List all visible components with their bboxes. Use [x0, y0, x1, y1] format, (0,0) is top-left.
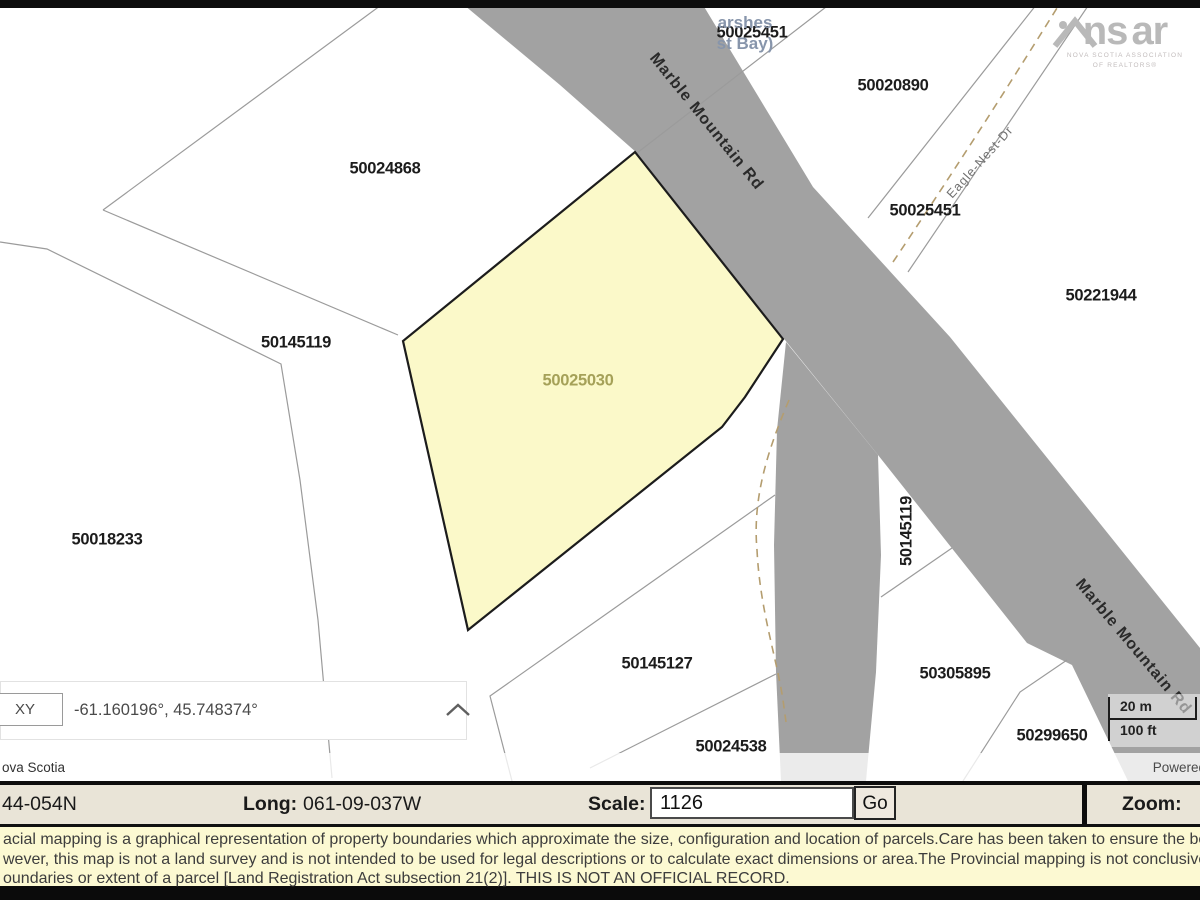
scale-bar-right-tick [1195, 697, 1197, 720]
parcel-label-50025451: 50025451 [889, 202, 960, 221]
attribution-strip: ova Scotia Powered [0, 753, 1200, 781]
nsar-logo-ar: ar [1131, 12, 1167, 50]
nsar-logo-subtitle2: OF REALTORS® [1052, 62, 1198, 70]
parcel-label-50025030: 50025030 [542, 372, 613, 391]
scale-input[interactable] [650, 787, 854, 819]
parcel-label-50020890: 50020890 [857, 77, 928, 96]
status-bar: 44-054N Long: 061-09-037W Scale: Go Zoom… [0, 781, 1200, 827]
scale-bar: 20 m 100 ft [1108, 694, 1200, 747]
place-name-line1: arshes [640, 12, 850, 33]
disclaimer-line2: wever, this map is not a land survey and… [3, 850, 1200, 870]
go-button[interactable]: Go [854, 786, 896, 820]
parcel-label-50299650: 50299650 [1016, 727, 1087, 746]
parcel-label-50145127: 50145127 [621, 655, 692, 674]
coordinate-mode-selector[interactable]: XY [0, 693, 63, 726]
scale-label: Scale: [588, 793, 645, 816]
nsar-logo-subtitle1: NOVA SCOTIA ASSOCIATION [1052, 52, 1198, 60]
parcel-label-50305895: 50305895 [919, 665, 990, 684]
zoom-label: Zoom: [1122, 793, 1182, 816]
place-name-line2: st Bay) [640, 33, 850, 54]
coordinate-value: -61.160196°, 45.748374° [74, 682, 258, 739]
top-chrome-bar [0, 0, 1200, 8]
nsar-logo: ns ar NOVA SCOTIA ASSOCIATION OF REALTOR… [1052, 12, 1198, 70]
parcel-label-50024868: 50024868 [349, 160, 420, 179]
dashed-eagle-nest-dr [893, 0, 1062, 262]
long-value: 061-09-037W [303, 793, 421, 816]
statusbar-divider [1082, 785, 1087, 824]
long-label: Long: [243, 793, 297, 816]
map-viewer-window: arshes st Bay) 5002545150020890500248685… [0, 0, 1200, 900]
lat-value: 44-054N [2, 793, 77, 816]
attribution-left-text: ova Scotia [2, 760, 65, 775]
scale-bar-imperial-label: 100 ft [1120, 722, 1157, 738]
disclaimer-line3: oundaries or extent of a parcel [Land Re… [3, 869, 1200, 889]
parcel-label-50018233: 50018233 [71, 531, 142, 550]
coordinate-widget: XY -61.160196°, 45.748374° [0, 681, 467, 740]
disclaimer-line1: acial mapping is a graphical representat… [3, 830, 1200, 850]
map-canvas[interactable]: arshes st Bay) 5002545150020890500248685… [0, 0, 1200, 781]
attribution-right-text: Powered [1153, 760, 1200, 775]
parcel-label-50145119: 50145119 [898, 496, 917, 566]
map-geometry [0, 0, 1200, 781]
scale-bar-line [1108, 718, 1197, 720]
parcel-label-50221944: 50221944 [1065, 287, 1136, 306]
disclaimer-panel: acial mapping is a graphical representat… [0, 827, 1200, 886]
parcel-label-50145119: 50145119 [261, 334, 331, 353]
place-name-label: arshes st Bay) [640, 12, 850, 54]
scale-bar-metric-label: 20 m [1120, 698, 1152, 714]
